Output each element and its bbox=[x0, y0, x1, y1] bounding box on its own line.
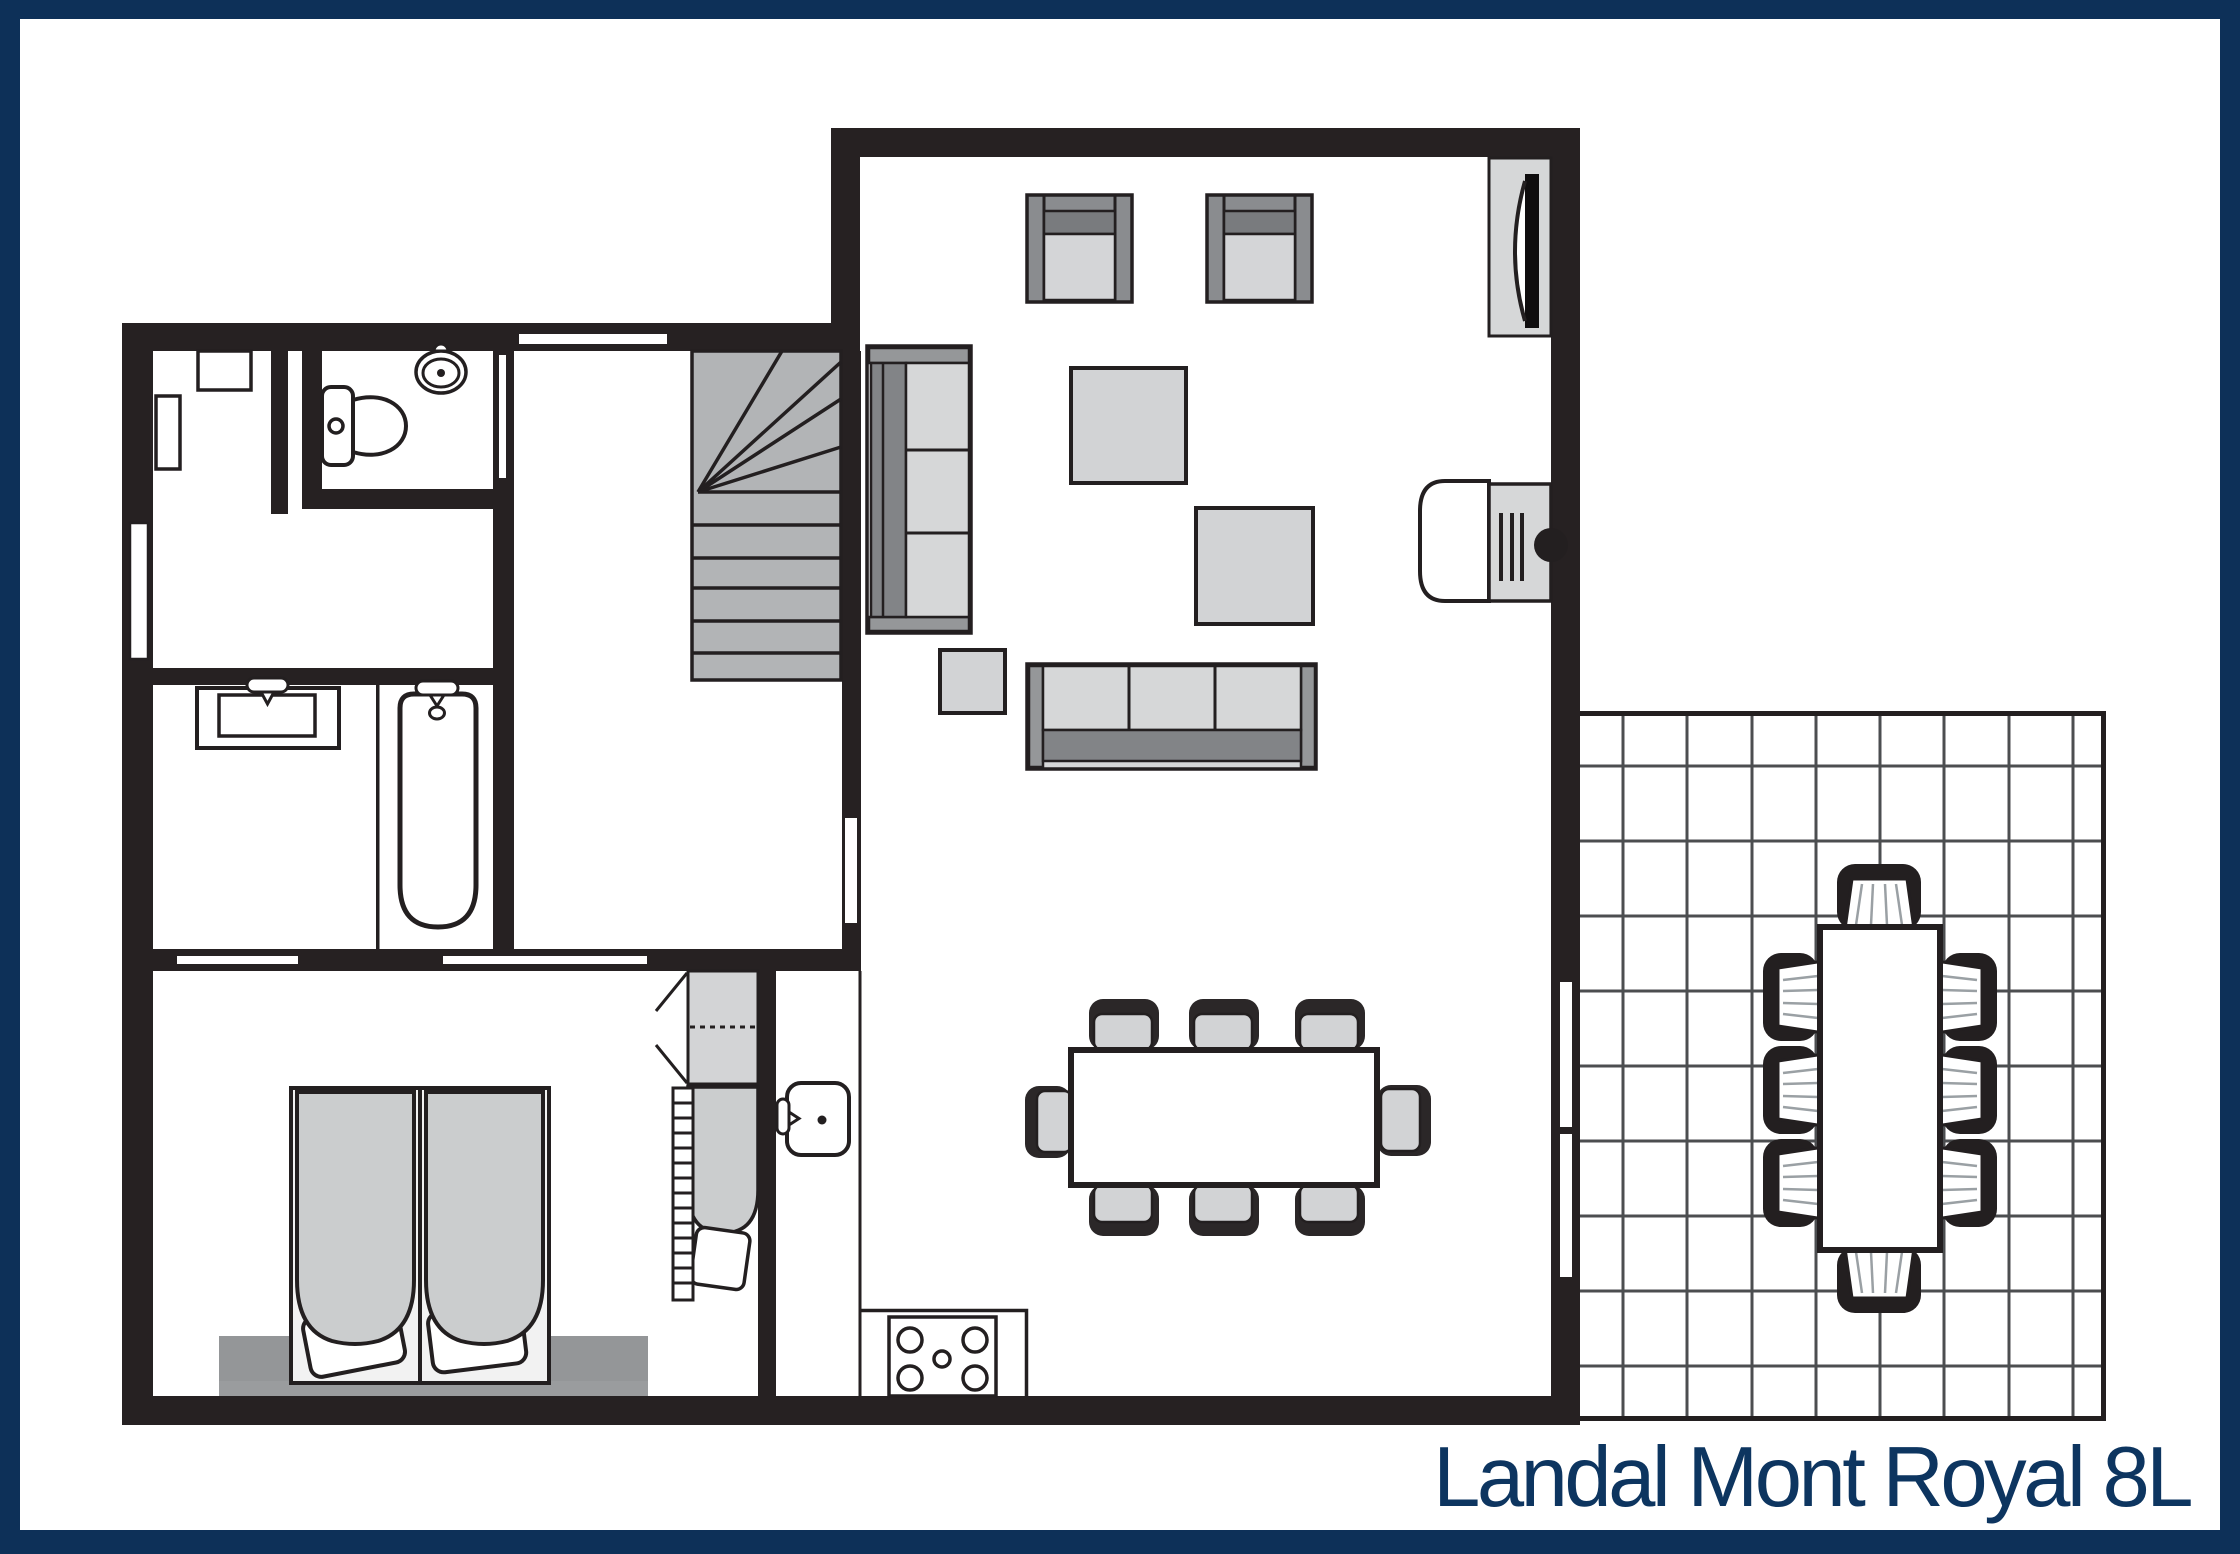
svg-text:Landal Mont Royal 8L: Landal Mont Royal 8L bbox=[1433, 1430, 2191, 1525]
